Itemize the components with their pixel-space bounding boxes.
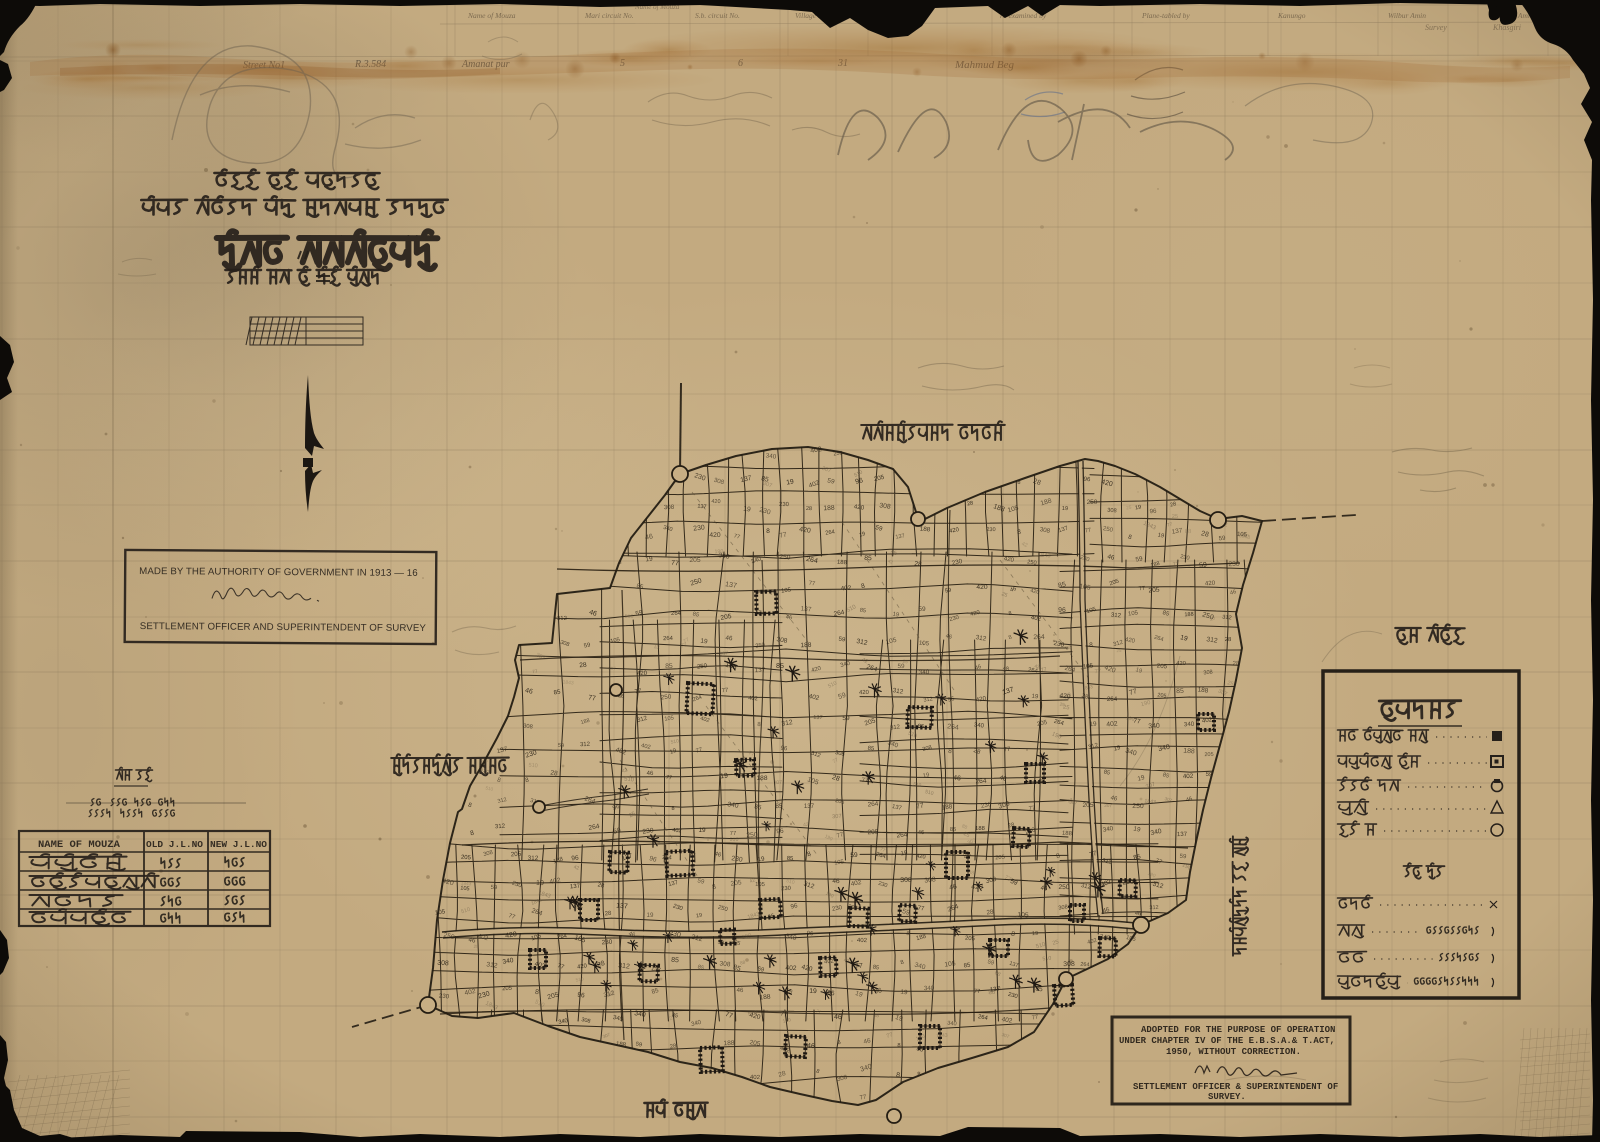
svg-text:420: 420 <box>1205 580 1216 588</box>
svg-text:77: 77 <box>855 963 863 971</box>
svg-text:8: 8 <box>766 528 770 535</box>
svg-text:250: 250 <box>1087 499 1098 506</box>
svg-text:SETTLEMENT OFFICER & SUPERINTE: SETTLEMENT OFFICER & SUPERINTENDENT OF <box>1133 1082 1338 1092</box>
svg-text:510: 510 <box>1042 956 1051 963</box>
svg-text:188: 188 <box>756 775 767 782</box>
svg-text:137: 137 <box>813 715 822 721</box>
svg-text:230: 230 <box>602 939 613 947</box>
svg-text:85: 85 <box>1058 581 1067 589</box>
svg-text:25: 25 <box>1172 514 1178 520</box>
svg-text:137: 137 <box>616 903 628 911</box>
svg-text:312: 312 <box>495 824 506 831</box>
svg-text:312: 312 <box>557 616 567 622</box>
svg-text:19: 19 <box>892 611 899 618</box>
svg-text:77: 77 <box>671 560 680 568</box>
svg-text:250: 250 <box>746 832 758 840</box>
svg-text:312: 312 <box>1111 612 1122 620</box>
svg-text:402: 402 <box>672 828 682 835</box>
svg-text:308: 308 <box>1063 961 1075 968</box>
svg-text:312: 312 <box>1222 615 1232 622</box>
svg-text:402: 402 <box>785 965 797 972</box>
svg-text:77: 77 <box>808 581 815 588</box>
svg-text:340: 340 <box>947 1021 957 1028</box>
svg-text:250: 250 <box>1122 879 1134 887</box>
svg-text:308: 308 <box>437 960 449 968</box>
svg-text:59: 59 <box>850 852 858 859</box>
svg-text:188: 188 <box>1062 831 1073 838</box>
svg-text:402: 402 <box>1106 720 1118 728</box>
svg-text:85: 85 <box>775 803 783 810</box>
svg-text:205: 205 <box>502 986 513 993</box>
svg-text:340: 340 <box>1184 721 1195 729</box>
svg-text:307: 307 <box>770 589 780 595</box>
svg-text:312: 312 <box>1149 905 1158 911</box>
svg-text:46: 46 <box>834 1014 842 1021</box>
svg-text:340: 340 <box>918 669 930 677</box>
svg-text:1843: 1843 <box>461 881 472 888</box>
svg-text:42: 42 <box>909 844 915 850</box>
svg-text:420: 420 <box>1176 661 1187 667</box>
svg-text:96: 96 <box>1083 476 1091 483</box>
svg-text:137: 137 <box>755 667 766 674</box>
svg-text:85: 85 <box>864 555 872 563</box>
svg-text:188: 188 <box>975 826 985 832</box>
svg-text:250: 250 <box>833 451 843 458</box>
svg-text:308: 308 <box>900 877 912 884</box>
svg-text:77: 77 <box>1003 747 1011 754</box>
svg-text:Survey: Survey <box>1425 23 1447 32</box>
svg-text:230: 230 <box>779 502 790 508</box>
svg-text:230: 230 <box>986 527 995 533</box>
svg-text:1843: 1843 <box>562 679 574 686</box>
svg-text:308: 308 <box>719 960 731 968</box>
svg-text:1843: 1843 <box>1149 880 1160 887</box>
svg-text:308: 308 <box>523 723 533 730</box>
svg-text:42: 42 <box>803 822 809 828</box>
svg-text:105: 105 <box>781 587 792 594</box>
svg-text:264: 264 <box>947 723 959 731</box>
svg-text:96: 96 <box>1058 607 1066 614</box>
svg-text:1950, WITHOUT CORRECTION.: 1950, WITHOUT CORRECTION. <box>1166 1047 1301 1057</box>
svg-text:250: 250 <box>779 554 791 562</box>
svg-text:205: 205 <box>1157 692 1167 699</box>
svg-text:340: 340 <box>765 452 777 460</box>
svg-text:Mari circuit No.: Mari circuit No. <box>584 11 634 20</box>
svg-text:77: 77 <box>754 610 762 618</box>
svg-text:85: 85 <box>917 724 925 731</box>
svg-text:46: 46 <box>785 614 792 621</box>
svg-text:85: 85 <box>950 827 957 833</box>
svg-text:420: 420 <box>853 503 865 511</box>
svg-text:402: 402 <box>857 938 868 944</box>
svg-text:420: 420 <box>971 884 983 891</box>
svg-text:307: 307 <box>832 814 842 821</box>
svg-text:188: 188 <box>837 560 848 567</box>
svg-text:230: 230 <box>1228 561 1240 568</box>
svg-text:77: 77 <box>1172 562 1179 569</box>
svg-text:264: 264 <box>867 801 879 809</box>
svg-text:19: 19 <box>698 827 706 834</box>
svg-text:88: 88 <box>873 1013 879 1019</box>
svg-text:85: 85 <box>665 663 673 670</box>
svg-text:96: 96 <box>577 992 586 1000</box>
svg-text:264: 264 <box>662 855 672 861</box>
svg-text:59: 59 <box>918 606 926 613</box>
svg-text:105: 105 <box>434 908 446 916</box>
svg-text:19: 19 <box>900 989 908 997</box>
svg-text:19: 19 <box>1032 931 1038 937</box>
svg-text:77: 77 <box>1094 669 1101 676</box>
svg-text:19: 19 <box>700 638 708 646</box>
svg-text:402: 402 <box>841 585 853 593</box>
svg-text:88: 88 <box>988 990 996 997</box>
svg-text:402: 402 <box>748 696 758 703</box>
svg-text:19: 19 <box>645 555 654 563</box>
svg-text:205: 205 <box>1157 663 1168 671</box>
svg-text:1843: 1843 <box>1037 553 1051 560</box>
svg-text:340: 340 <box>1148 723 1160 731</box>
svg-text:Plane-tabled by: Plane-tabled by <box>1141 11 1190 20</box>
svg-text:19: 19 <box>647 912 654 919</box>
svg-text:NAME OF MOUZA: NAME OF MOUZA <box>38 839 121 851</box>
svg-text:59: 59 <box>491 885 498 891</box>
svg-text:28: 28 <box>550 770 559 778</box>
svg-text:205: 205 <box>1082 802 1093 809</box>
svg-text:96: 96 <box>827 990 835 998</box>
svg-text:77: 77 <box>532 669 538 676</box>
svg-text:77: 77 <box>722 688 729 695</box>
svg-text:205: 205 <box>1148 587 1160 595</box>
svg-text:402: 402 <box>824 959 834 966</box>
svg-text:77: 77 <box>588 694 597 702</box>
svg-text:59: 59 <box>1199 562 1208 570</box>
svg-text:96: 96 <box>780 746 788 753</box>
svg-text:205: 205 <box>867 829 879 837</box>
svg-text:308: 308 <box>664 504 675 512</box>
svg-text:137: 137 <box>804 803 815 810</box>
svg-text:96: 96 <box>776 828 784 836</box>
svg-text:59: 59 <box>842 715 850 722</box>
svg-text:105: 105 <box>755 882 765 888</box>
svg-text:S.b. circuit No.: S.b. circuit No. <box>695 11 740 20</box>
svg-text:264: 264 <box>573 905 583 912</box>
svg-text:307: 307 <box>481 758 489 763</box>
svg-text:NEW J.L.NO: NEW J.L.NO <box>210 839 267 850</box>
svg-text:77: 77 <box>1029 806 1037 812</box>
svg-text:205: 205 <box>965 935 976 942</box>
svg-text:420: 420 <box>637 670 648 677</box>
svg-text:230: 230 <box>438 992 450 1000</box>
svg-text:402: 402 <box>750 1075 761 1081</box>
svg-text:205: 205 <box>1204 752 1213 758</box>
svg-text:59: 59 <box>557 743 564 750</box>
svg-text:46: 46 <box>647 770 655 777</box>
svg-text:340: 340 <box>924 985 935 992</box>
svg-text:307: 307 <box>1104 803 1112 808</box>
svg-text:19: 19 <box>743 505 752 513</box>
svg-text:105: 105 <box>1017 912 1029 920</box>
svg-text:250: 250 <box>697 662 709 670</box>
svg-text:SETTLEMENT OFFICER AND SUPERI: SETTLEMENT OFFICER AND SUPERINTENDENT OF… <box>140 621 427 634</box>
svg-text:MADE BY THE AUTHORITY OF GOVER: MADE BY THE AUTHORITY OF GOVERNMENT IN 1… <box>139 566 418 579</box>
svg-text:59: 59 <box>945 588 952 595</box>
svg-text:312: 312 <box>528 855 539 862</box>
svg-text:28: 28 <box>967 500 974 507</box>
svg-text:28: 28 <box>806 506 812 512</box>
svg-text:308: 308 <box>1107 508 1117 515</box>
svg-text:42: 42 <box>654 645 661 651</box>
svg-text:96: 96 <box>571 855 579 863</box>
svg-text:96: 96 <box>1149 508 1157 516</box>
svg-text:188: 188 <box>1197 686 1209 694</box>
svg-text:OLD J.L.NO: OLD J.L.NO <box>146 839 203 850</box>
svg-text:85: 85 <box>787 856 794 862</box>
svg-text:28: 28 <box>579 662 587 670</box>
svg-text:77: 77 <box>861 777 869 784</box>
svg-text:510: 510 <box>528 763 538 770</box>
svg-text:230: 230 <box>693 524 705 532</box>
svg-text:188: 188 <box>823 505 835 513</box>
svg-text:264: 264 <box>1033 634 1045 641</box>
svg-text:308: 308 <box>1203 669 1213 676</box>
svg-text:85: 85 <box>776 663 784 670</box>
svg-text:19: 19 <box>1089 721 1097 729</box>
svg-text:264: 264 <box>1107 696 1118 703</box>
svg-text:8: 8 <box>897 1043 900 1049</box>
svg-text:205: 205 <box>995 855 1005 862</box>
svg-text:420: 420 <box>711 499 720 505</box>
svg-text:77: 77 <box>1139 586 1146 593</box>
svg-text:264: 264 <box>975 778 987 786</box>
svg-text:420: 420 <box>709 532 721 539</box>
svg-text:8: 8 <box>618 560 621 566</box>
svg-text:25: 25 <box>473 944 479 949</box>
svg-text:46: 46 <box>832 878 840 885</box>
svg-text:8: 8 <box>1017 480 1021 486</box>
svg-text:19: 19 <box>536 880 544 887</box>
svg-text:137: 137 <box>1177 831 1188 838</box>
svg-text:8: 8 <box>671 806 674 812</box>
svg-text:59: 59 <box>635 1041 642 1048</box>
svg-text:77: 77 <box>1085 527 1092 534</box>
svg-text:ADOPTED FOR THE PURPOSE OF OPE: ADOPTED FOR THE PURPOSE OF OPERATION <box>1141 1025 1335 1035</box>
svg-text:188: 188 <box>759 994 771 1002</box>
svg-text:188: 188 <box>615 1040 627 1048</box>
svg-text:Kanungo: Kanungo <box>1277 11 1306 20</box>
svg-text:307: 307 <box>773 780 782 787</box>
svg-text:188: 188 <box>1183 748 1195 756</box>
svg-text:264: 264 <box>671 611 682 617</box>
svg-text:205: 205 <box>461 855 472 862</box>
svg-text:105: 105 <box>919 639 930 647</box>
svg-text:Name of Mouza: Name of Mouza <box>467 11 516 20</box>
svg-text:UNDER CHAPTER IV OF THE E.B.S.: UNDER CHAPTER IV OF THE E.B.S.A.& T.ACT, <box>1119 1036 1335 1046</box>
svg-text:88: 88 <box>1185 529 1192 535</box>
svg-text:85: 85 <box>671 957 679 965</box>
svg-text:85: 85 <box>1035 986 1043 994</box>
svg-text:137: 137 <box>570 884 581 891</box>
svg-text:25: 25 <box>890 551 897 558</box>
svg-text:46: 46 <box>807 1043 815 1050</box>
svg-text:77: 77 <box>974 989 982 995</box>
svg-text:85: 85 <box>859 608 866 615</box>
svg-text:137: 137 <box>800 605 812 613</box>
svg-text:85: 85 <box>872 964 879 971</box>
svg-text:19: 19 <box>1062 506 1069 512</box>
svg-text:188: 188 <box>723 1040 735 1047</box>
svg-text:420: 420 <box>859 690 870 696</box>
svg-text:307: 307 <box>608 666 616 671</box>
svg-text:19: 19 <box>757 856 765 864</box>
svg-text:307: 307 <box>719 650 729 657</box>
svg-text:420: 420 <box>976 584 987 591</box>
svg-text:19: 19 <box>720 773 729 781</box>
svg-text:205: 205 <box>689 557 700 564</box>
svg-text:77: 77 <box>665 774 672 781</box>
svg-text:312: 312 <box>890 724 901 731</box>
svg-text:188: 188 <box>800 642 812 650</box>
svg-text:230: 230 <box>781 886 791 892</box>
svg-text:8: 8 <box>1089 642 1093 649</box>
svg-text:250: 250 <box>1058 884 1069 891</box>
svg-text:46: 46 <box>725 635 733 643</box>
svg-text:307: 307 <box>1069 799 1078 806</box>
svg-text:28: 28 <box>605 911 612 918</box>
svg-text:Wilbur Amin: Wilbur Amin <box>1388 11 1426 20</box>
svg-text:264: 264 <box>663 636 674 642</box>
svg-text:85: 85 <box>1039 779 1047 785</box>
svg-text:46: 46 <box>953 774 962 782</box>
svg-text:312: 312 <box>618 962 630 970</box>
svg-text:190: 190 <box>714 549 723 555</box>
svg-text:250: 250 <box>1132 803 1144 810</box>
svg-text:19: 19 <box>696 913 703 920</box>
svg-text:25: 25 <box>1116 648 1122 653</box>
svg-text:28: 28 <box>1225 637 1232 643</box>
svg-text:19: 19 <box>786 478 795 486</box>
svg-text:264: 264 <box>896 831 908 839</box>
svg-text:188: 188 <box>1184 612 1194 618</box>
svg-text:77: 77 <box>688 852 696 860</box>
svg-text:250: 250 <box>660 693 672 701</box>
svg-text:46: 46 <box>918 830 924 836</box>
svg-text:510: 510 <box>730 837 739 843</box>
svg-text:85: 85 <box>1176 688 1184 695</box>
svg-text:205: 205 <box>511 851 522 859</box>
svg-text:46: 46 <box>736 987 744 994</box>
svg-text:510: 510 <box>625 614 634 620</box>
svg-text:SURVEY.: SURVEY. <box>1208 1092 1246 1102</box>
svg-text:59: 59 <box>1179 854 1187 861</box>
svg-text:188: 188 <box>919 525 931 533</box>
svg-text:28: 28 <box>1233 661 1240 667</box>
svg-text:137: 137 <box>697 504 707 511</box>
svg-text:8: 8 <box>906 931 910 937</box>
svg-text:96: 96 <box>806 931 813 938</box>
svg-text:59: 59 <box>897 663 905 670</box>
svg-text:1843: 1843 <box>936 1033 948 1040</box>
svg-text:25: 25 <box>1126 505 1132 511</box>
svg-text:510: 510 <box>624 777 635 784</box>
svg-text:28: 28 <box>914 561 922 569</box>
svg-text:402: 402 <box>1183 773 1194 781</box>
svg-text:19: 19 <box>1135 504 1142 511</box>
svg-text:264: 264 <box>1080 962 1090 969</box>
svg-text:46: 46 <box>645 533 654 541</box>
svg-text:85: 85 <box>867 746 874 753</box>
svg-text:19: 19 <box>809 988 817 995</box>
svg-text:312: 312 <box>580 742 591 749</box>
